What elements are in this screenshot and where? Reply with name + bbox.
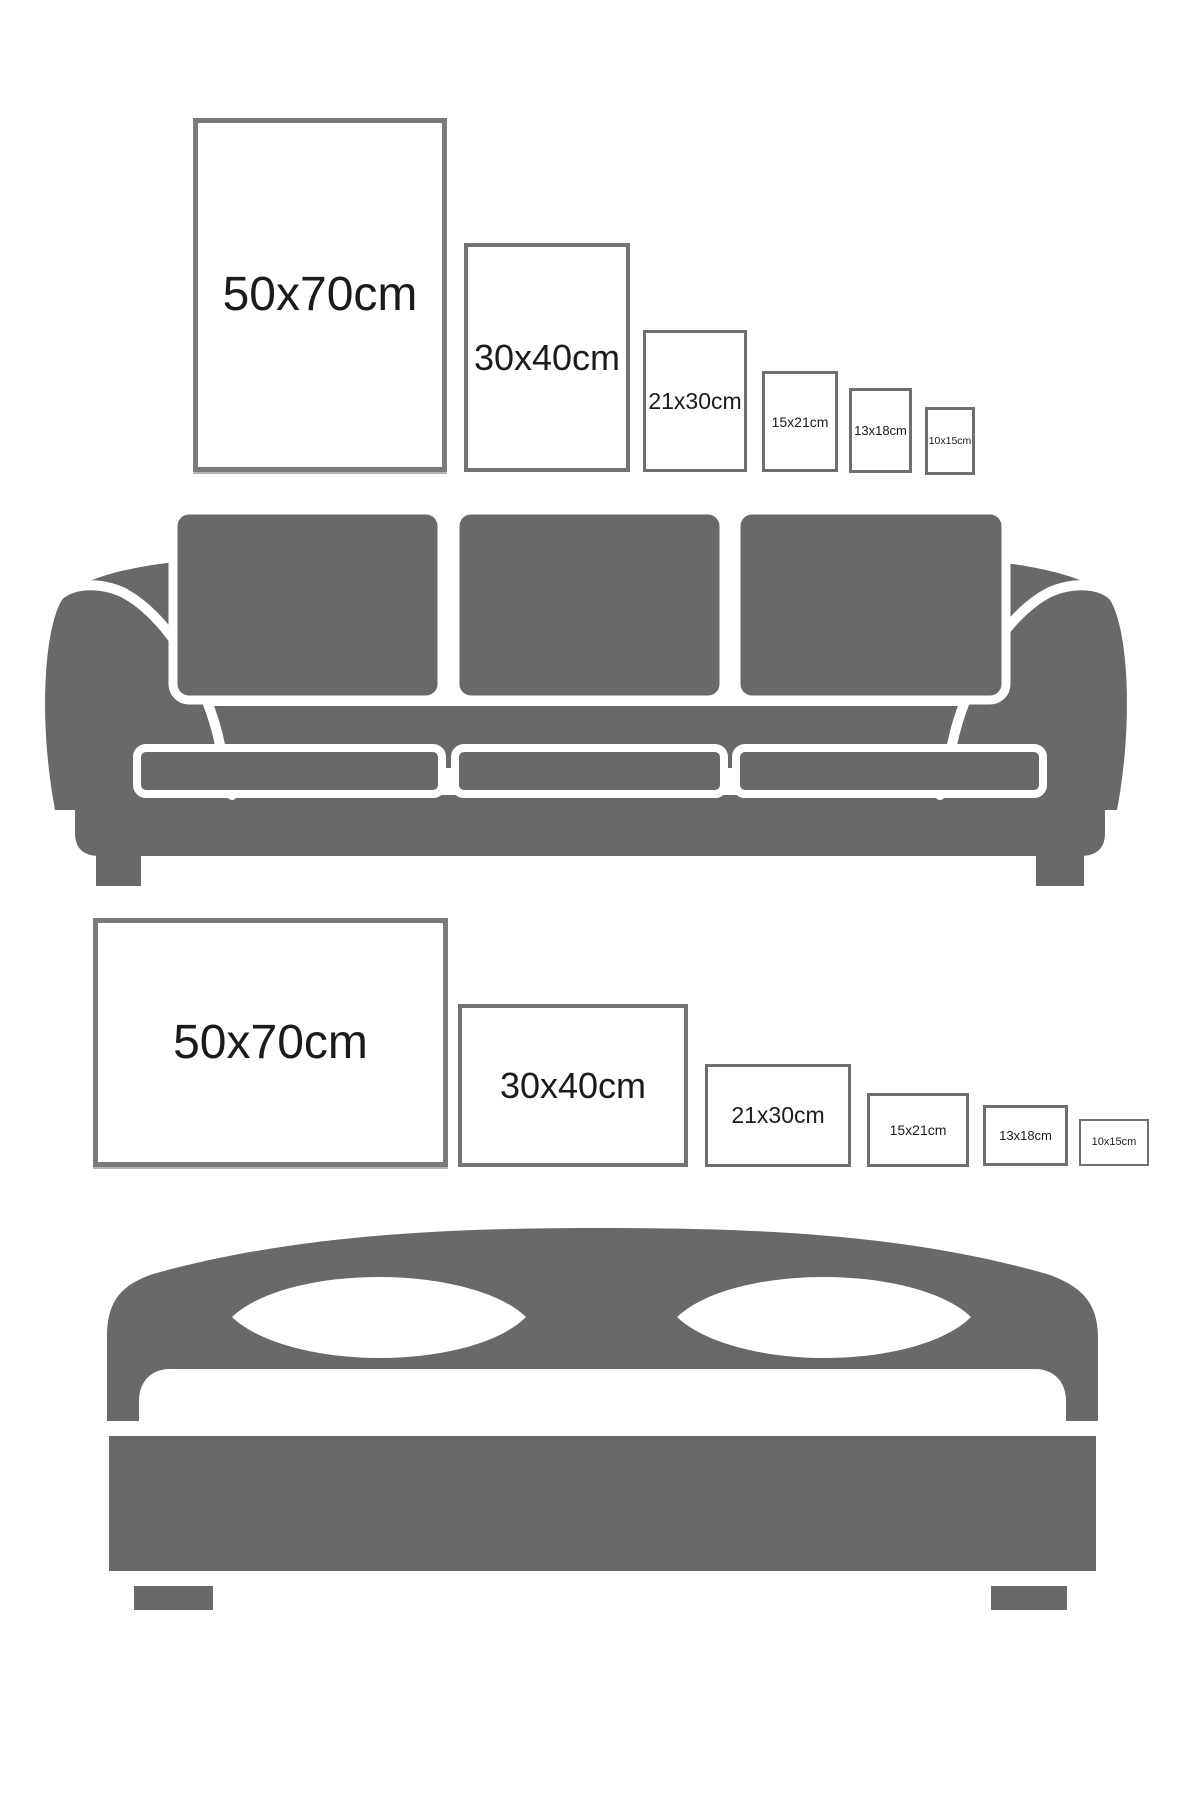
frame-label: 10x15cm — [929, 436, 972, 447]
frame-label: 50x70cm — [173, 1019, 368, 1067]
sofa-seat-cushion-3 — [736, 748, 1043, 794]
sofa-back-cushion-2 — [455, 510, 724, 700]
frame-label: 21x30cm — [731, 1104, 824, 1127]
frame-label: 30x40cm — [500, 1068, 646, 1104]
frame-label: 10x15cm — [1092, 1137, 1137, 1148]
sofa-seat-cushion-1 — [137, 748, 442, 794]
frame-portrait-21x30: 21x30cm — [643, 330, 747, 472]
frame-landscape-13x18: 13x18cm — [983, 1105, 1068, 1166]
sofa-illustration — [40, 495, 1140, 895]
bed-mattress — [109, 1436, 1096, 1571]
frame-portrait-15x21: 15x21cm — [762, 371, 838, 472]
frame-portrait-13x18: 13x18cm — [849, 388, 912, 473]
bed-foot-right — [991, 1586, 1067, 1610]
frame-portrait-50x70: 50x70cm — [193, 118, 447, 472]
frame-label: 50x70cm — [223, 271, 418, 319]
frame-label: 21x30cm — [648, 390, 741, 413]
sofa-foot-left — [96, 851, 141, 886]
frame-portrait-10x15: 10x15cm — [925, 407, 975, 475]
frame-label: 30x40cm — [474, 340, 620, 376]
sofa-foot-right — [1036, 851, 1084, 886]
frame-label: 15x21cm — [772, 415, 829, 429]
sofa-back-cushion-3 — [736, 510, 1006, 700]
sofa-seat-cushion-2 — [455, 748, 724, 794]
frame-label: 13x18cm — [999, 1129, 1052, 1142]
frame-landscape-15x21: 15x21cm — [867, 1093, 969, 1167]
bed-foot-left — [134, 1586, 213, 1610]
frame-label: 15x21cm — [890, 1123, 947, 1137]
frame-portrait-30x40: 30x40cm — [464, 243, 630, 472]
frame-landscape-30x40: 30x40cm — [458, 1004, 688, 1167]
bed-illustration — [95, 1225, 1105, 1615]
frame-landscape-21x30: 21x30cm — [705, 1064, 851, 1167]
frame-label: 13x18cm — [854, 424, 907, 437]
sofa-back-cushion-1 — [173, 510, 442, 700]
frame-landscape-10x15: 10x15cm — [1079, 1119, 1149, 1166]
size-guide-canvas: 50x70cm 30x40cm 21x30cm 15x21cm 13x18cm … — [0, 0, 1200, 1800]
frame-landscape-50x70: 50x70cm — [93, 918, 448, 1167]
